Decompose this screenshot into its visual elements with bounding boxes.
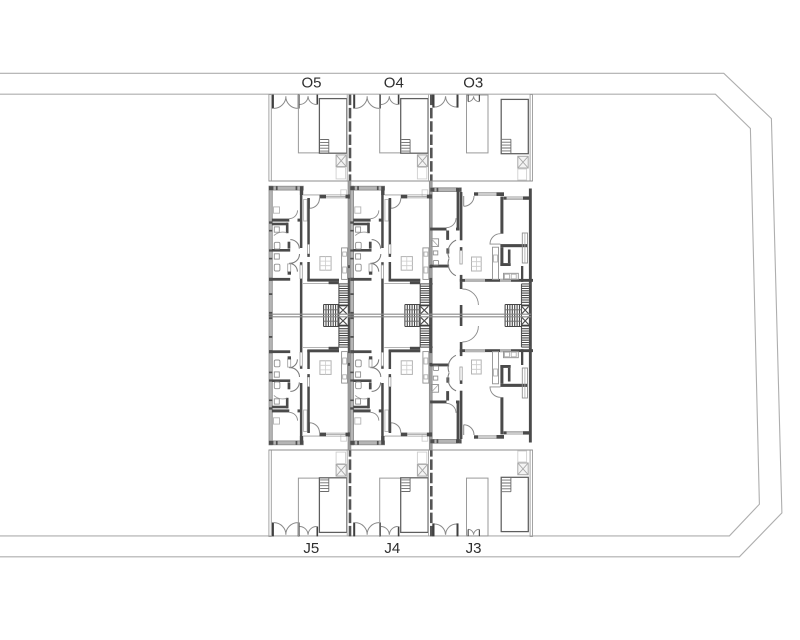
svg-text:J3: J3 <box>466 540 482 557</box>
svg-text:O5: O5 <box>301 75 321 92</box>
svg-text:J4: J4 <box>384 540 400 557</box>
svg-text:O4: O4 <box>384 75 404 92</box>
svg-text:J5: J5 <box>303 540 319 557</box>
svg-text:O3: O3 <box>463 75 483 92</box>
